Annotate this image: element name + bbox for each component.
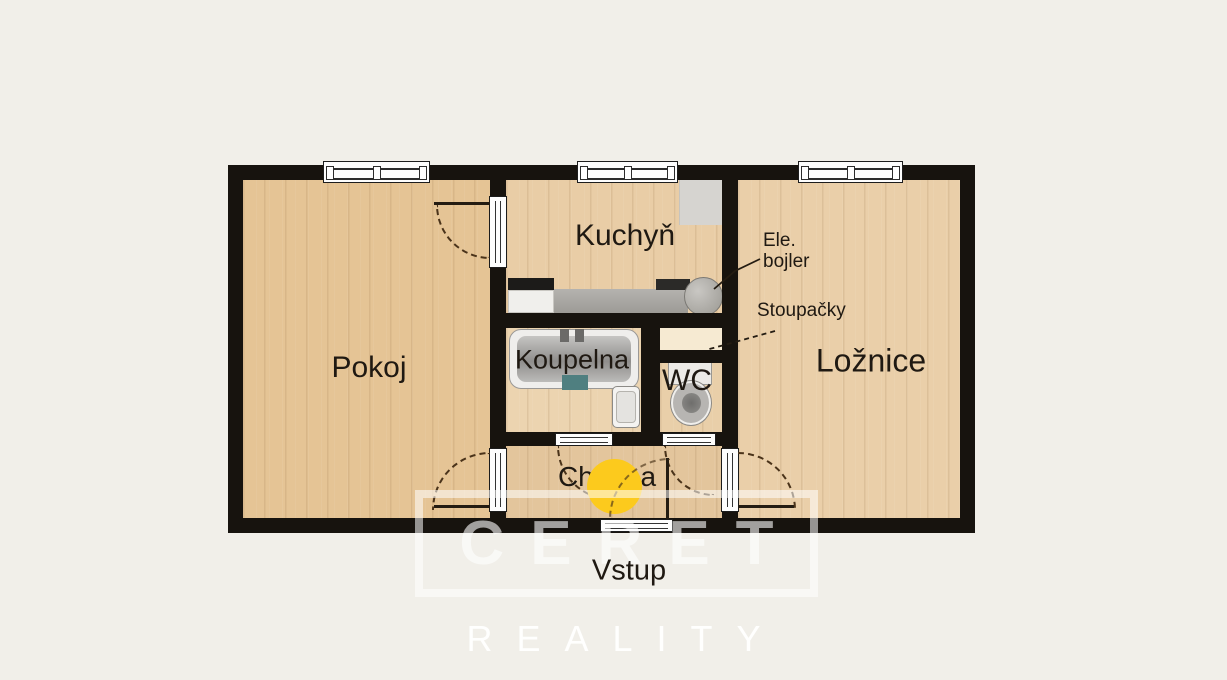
floor-plan-canvas: Chodba Pokoj Kuchyň Koupelna WC Ložnice … (0, 0, 1227, 680)
door-frame-inner (667, 437, 711, 443)
annotation-boiler: Ele. bojler (763, 230, 809, 272)
boiler-icon (684, 277, 723, 316)
window-mullion (580, 166, 588, 180)
kitchen-counter-icon (554, 289, 688, 313)
window-mullion (892, 166, 900, 180)
window-mullion (847, 166, 855, 180)
door-icon-pokoj-chodba (489, 448, 507, 512)
door-frame-inner (560, 437, 608, 443)
door-frame-inner (495, 201, 501, 263)
wall-bath-wc (641, 328, 660, 446)
room-label-kuchyn: Kuchyň (575, 219, 675, 253)
room-label-wc: WC (662, 364, 712, 398)
window-mullion (624, 166, 632, 180)
window-mullion (667, 166, 675, 180)
wall-risers-bottom (660, 350, 722, 363)
room-label-pokoj: Pokoj (331, 351, 406, 385)
window-icon-pokoj (323, 161, 430, 183)
stove-body (508, 290, 554, 313)
risers-shaft (660, 328, 722, 350)
wall-right (960, 165, 975, 533)
sink-basin (616, 391, 636, 423)
entrance-label: Vstup (592, 555, 666, 588)
annotation-boiler-line2: bojler (763, 251, 809, 272)
door-icon-koupelna (555, 433, 613, 446)
room-label-loznice: Ložnice (816, 343, 926, 380)
wall-kitchen-bottom (506, 313, 722, 328)
bathtub-tray (562, 375, 588, 390)
window-mullion (326, 166, 334, 180)
door-icon-wc (662, 433, 716, 446)
watermark-tagline: REALITY (0, 618, 1227, 660)
window-mullion (801, 166, 809, 180)
door-frame-inner (495, 453, 501, 507)
door-icon-chodba-loznice (721, 448, 739, 512)
room-label-koupelna: Koupelna (515, 345, 629, 376)
bathtub-faucet-icon-2 (575, 329, 584, 342)
door-icon-entrance (600, 519, 673, 532)
door-frame-inner (727, 453, 733, 507)
stove-icon (508, 278, 554, 290)
window-icon-kuchyn (577, 161, 678, 183)
fridge-icon (679, 178, 722, 225)
window-mullion (419, 166, 427, 180)
door-frame-inner (605, 523, 668, 529)
window-mullion (373, 166, 381, 180)
annotation-boiler-line1: Ele. (763, 230, 809, 251)
window-icon-loznice (798, 161, 903, 183)
annotation-risers: Stoupačky (757, 300, 846, 321)
bathtub-faucet-icon (560, 329, 569, 342)
wall-left (228, 165, 243, 533)
door-icon-pokoj-kuchyn (489, 196, 507, 268)
